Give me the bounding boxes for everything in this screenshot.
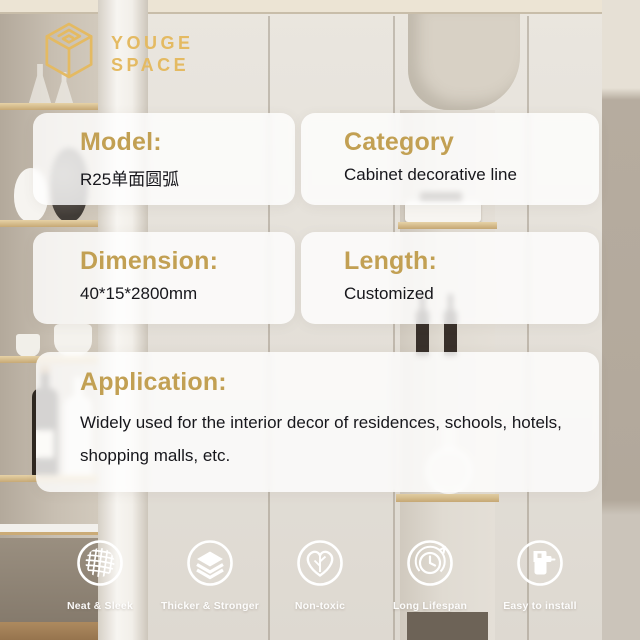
model-label: Model: <box>80 128 279 157</box>
crown-molding <box>0 0 640 14</box>
white-cup <box>16 334 40 357</box>
glue-gun-icon <box>516 539 564 587</box>
feature-neat-sleek: Neat & Sleek <box>45 539 155 612</box>
feature-label: Neat & Sleek <box>67 600 133 612</box>
brand-name-line2: SPACE <box>111 54 194 76</box>
feature-thicker-stronger: Thicker & Stronger <box>155 539 265 612</box>
spec-card-category: Category Cabinet decorative line <box>301 113 599 205</box>
wood-shelf <box>0 220 100 227</box>
feature-label: Long Lifespan <box>393 600 467 612</box>
brand-logo: YOUGE SPACE <box>42 21 194 86</box>
niche-opening <box>407 612 488 640</box>
product-spec-poster: YOUGE SPACE Model: R25单面圆弧 Category Cabi… <box>0 0 640 640</box>
stacked-layers-icon <box>186 539 234 587</box>
spec-card-model: Model: R25单面圆弧 <box>33 113 295 205</box>
spec-card-length: Length: Customized <box>301 232 599 324</box>
feature-non-toxic: Non-toxic <box>265 539 375 612</box>
clock-cycle-icon <box>406 539 454 587</box>
category-value: Cabinet decorative line <box>344 165 583 185</box>
model-value: R25单面圆弧 <box>80 165 279 190</box>
spec-card-application: Application: Widely used for the interio… <box>36 352 599 492</box>
wood-shelf <box>398 222 497 229</box>
dimension-label: Dimension: <box>80 247 279 276</box>
category-label: Category <box>344 128 583 157</box>
feature-label: Thicker & Stronger <box>161 600 259 612</box>
heart-leaf-icon <box>296 539 344 587</box>
brand-name: YOUGE SPACE <box>111 32 194 76</box>
dimension-value: 40*15*2800mm <box>80 284 279 304</box>
length-value: Customized <box>344 284 583 304</box>
feature-row: Neat & Sleek Thicker & Stronger <box>0 539 640 612</box>
feature-long-lifespan: Long Lifespan <box>375 539 485 612</box>
length-label: Length: <box>344 247 583 276</box>
feature-easy-install: Easy to install <box>485 539 595 612</box>
feature-label: Non-toxic <box>295 600 345 612</box>
application-label: Application: <box>80 368 563 397</box>
wood-shelf <box>396 494 499 502</box>
spec-card-dimension: Dimension: 40*15*2800mm <box>33 232 295 324</box>
feature-label: Easy to install <box>503 600 577 612</box>
woven-mesh-icon <box>76 539 124 587</box>
cube-outline-icon <box>42 21 96 86</box>
brand-name-line1: YOUGE <box>111 32 194 54</box>
application-value: Widely used for the interior decor of re… <box>80 406 563 472</box>
wood-shelf <box>0 103 100 110</box>
